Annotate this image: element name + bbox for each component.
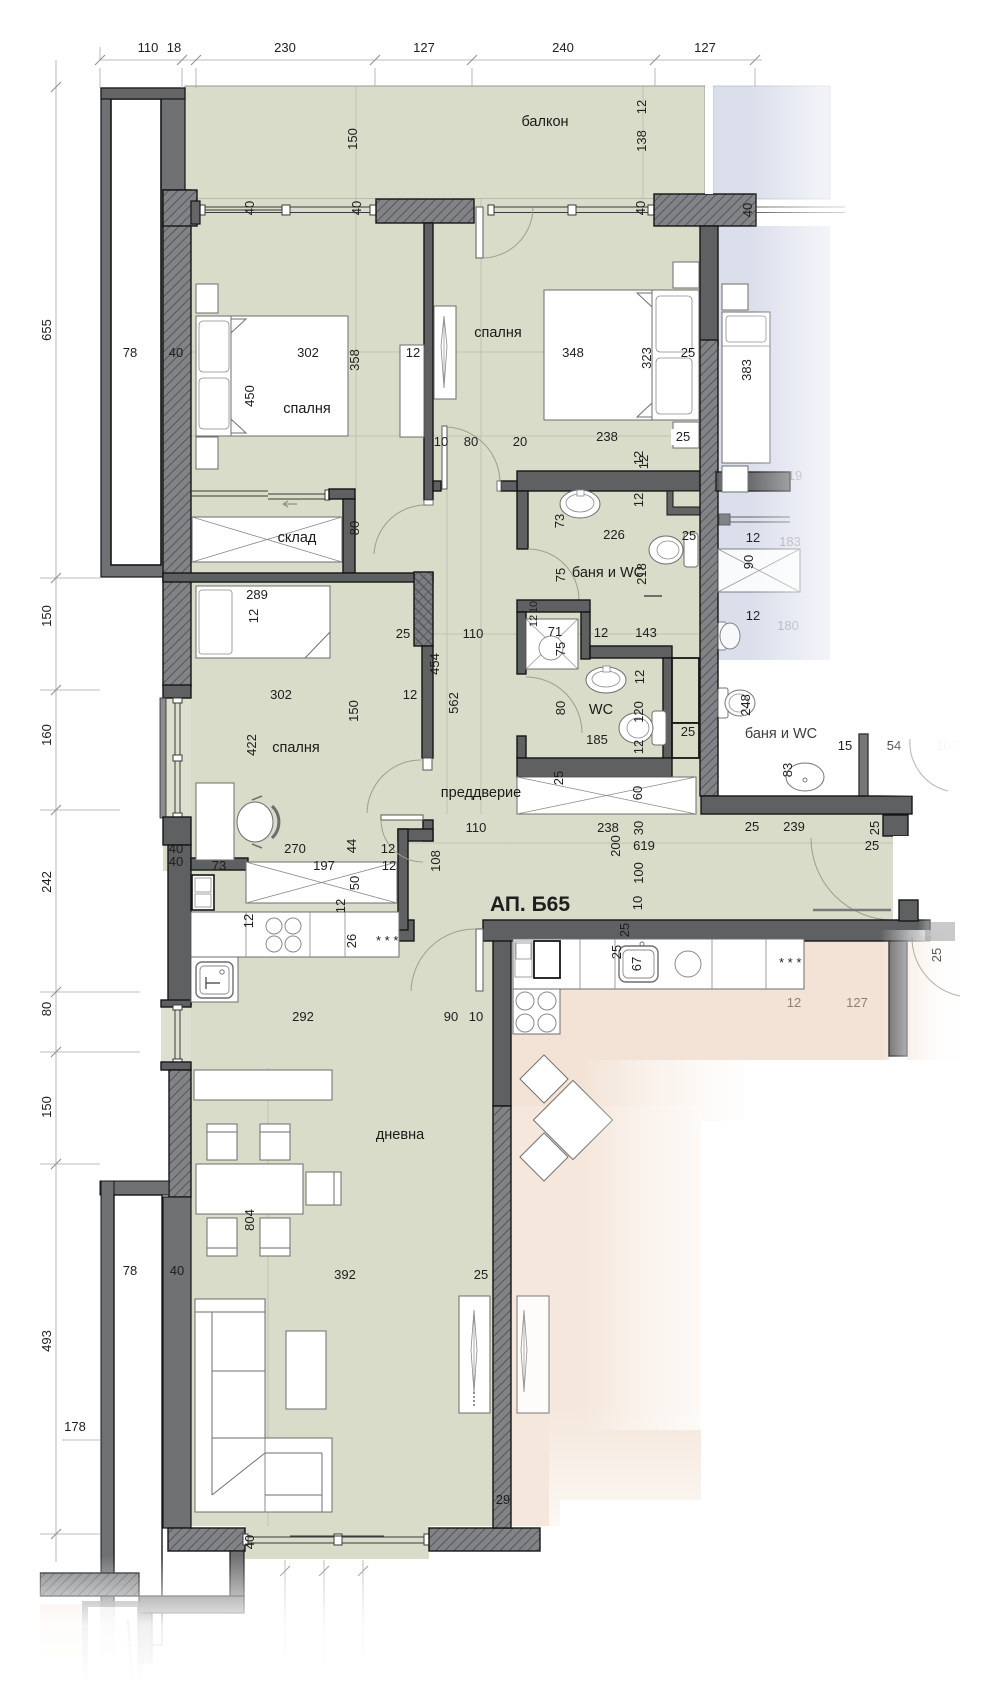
svg-text:150: 150 — [345, 128, 360, 150]
svg-text:197: 197 — [313, 858, 335, 873]
svg-text:143: 143 — [635, 625, 657, 640]
svg-text:127: 127 — [694, 40, 716, 55]
svg-text:25: 25 — [551, 771, 566, 785]
svg-text:12: 12 — [787, 995, 801, 1010]
svg-text:10: 10 — [528, 601, 540, 613]
svg-text:83: 83 — [780, 763, 795, 777]
svg-text:25: 25 — [396, 626, 410, 641]
svg-text:73: 73 — [552, 514, 567, 528]
svg-text:619: 619 — [633, 838, 655, 853]
svg-text:12: 12 — [631, 740, 646, 754]
svg-text:292: 292 — [292, 1009, 314, 1024]
svg-text:270: 270 — [284, 841, 306, 856]
svg-text:44: 44 — [344, 839, 359, 853]
svg-text:12: 12 — [528, 615, 540, 627]
svg-text:40: 40 — [349, 201, 364, 215]
svg-text:40: 40 — [170, 1263, 184, 1278]
svg-text:454: 454 — [427, 653, 442, 675]
svg-text:80: 80 — [39, 1002, 54, 1016]
svg-text:493: 493 — [39, 1330, 54, 1352]
svg-text:20: 20 — [513, 434, 527, 449]
svg-text:12: 12 — [381, 841, 395, 856]
svg-text:75: 75 — [553, 642, 568, 656]
svg-text:25: 25 — [474, 1267, 488, 1282]
svg-text:178: 178 — [64, 1419, 86, 1434]
svg-text:238: 238 — [596, 429, 618, 444]
svg-text:40: 40 — [242, 201, 257, 215]
svg-text:80: 80 — [347, 521, 362, 535]
svg-text:73: 73 — [212, 858, 226, 873]
svg-text:40: 40 — [169, 854, 183, 869]
svg-text:226: 226 — [603, 527, 625, 542]
svg-text:10: 10 — [469, 1009, 483, 1024]
svg-text:240: 240 — [552, 40, 574, 55]
svg-text:127: 127 — [846, 995, 868, 1010]
svg-text:25: 25 — [682, 528, 696, 543]
svg-text:12: 12 — [631, 451, 646, 465]
svg-text:25: 25 — [929, 948, 944, 962]
svg-text:преддверие: преддверие — [441, 785, 521, 801]
svg-text:302: 302 — [297, 345, 319, 360]
svg-text:60: 60 — [630, 786, 645, 800]
svg-text:12: 12 — [631, 493, 646, 507]
svg-text:100: 100 — [631, 862, 646, 884]
svg-text:302: 302 — [270, 687, 292, 702]
svg-text:127: 127 — [413, 40, 435, 55]
svg-text:15: 15 — [838, 738, 852, 753]
svg-text:18: 18 — [167, 40, 181, 55]
svg-text:450: 450 — [242, 385, 257, 407]
svg-text:358: 358 — [347, 349, 362, 371]
svg-text:12: 12 — [594, 625, 608, 640]
svg-text:12: 12 — [241, 914, 256, 928]
svg-text:160: 160 — [39, 724, 54, 746]
svg-text:баня и WC: баня и WC — [572, 565, 644, 581]
svg-text:804: 804 — [242, 1209, 257, 1231]
svg-text:25: 25 — [676, 429, 690, 444]
svg-text:150: 150 — [39, 605, 54, 627]
svg-text:* * *: * * * — [376, 933, 398, 948]
svg-text:80: 80 — [464, 434, 478, 449]
svg-text:25: 25 — [681, 345, 695, 360]
svg-text:12: 12 — [634, 100, 649, 114]
svg-text:30: 30 — [631, 821, 646, 835]
svg-text:25: 25 — [867, 821, 882, 835]
svg-text:WC: WC — [589, 702, 613, 718]
svg-text:25: 25 — [681, 724, 695, 739]
svg-text:185: 185 — [586, 732, 608, 747]
svg-text:80: 80 — [553, 701, 568, 715]
svg-text:дневна: дневна — [376, 1127, 425, 1143]
svg-text:120: 120 — [631, 701, 646, 723]
svg-text:12: 12 — [333, 899, 348, 913]
svg-text:12: 12 — [246, 609, 261, 623]
svg-text:150: 150 — [346, 700, 361, 722]
svg-text:балкон: балкон — [521, 114, 568, 130]
svg-text:12: 12 — [406, 345, 420, 360]
svg-text:25: 25 — [745, 819, 759, 834]
svg-text:спалня: спалня — [474, 325, 522, 341]
svg-text:138: 138 — [634, 130, 649, 152]
svg-text:71: 71 — [548, 624, 562, 639]
svg-text:75: 75 — [553, 568, 568, 582]
svg-text:78: 78 — [123, 345, 137, 360]
svg-text:78: 78 — [123, 1263, 137, 1278]
svg-text:12: 12 — [382, 858, 396, 873]
svg-text:323: 323 — [639, 347, 654, 369]
svg-text:АП. Б65: АП. Б65 — [490, 893, 570, 916]
svg-text:26: 26 — [344, 934, 359, 948]
svg-text:108: 108 — [428, 850, 443, 872]
svg-text:50: 50 — [347, 876, 362, 890]
svg-text:* * *: * * * — [779, 955, 801, 970]
svg-text:баня и WC: баня и WC — [745, 726, 817, 742]
svg-text:25: 25 — [617, 923, 632, 937]
svg-text:10: 10 — [434, 434, 448, 449]
svg-text:10: 10 — [630, 896, 645, 910]
svg-text:67: 67 — [629, 957, 644, 971]
svg-text:562: 562 — [446, 692, 461, 714]
svg-text:392: 392 — [334, 1267, 356, 1282]
svg-text:200: 200 — [608, 835, 623, 857]
svg-text:29: 29 — [496, 1492, 510, 1507]
svg-text:спалня: спалня — [272, 740, 320, 756]
svg-text:422: 422 — [244, 734, 259, 756]
svg-text:655: 655 — [39, 319, 54, 341]
svg-text:150: 150 — [39, 1096, 54, 1118]
svg-text:110: 110 — [466, 820, 487, 835]
svg-text:348: 348 — [562, 345, 584, 360]
svg-text:238: 238 — [597, 820, 619, 835]
svg-text:239: 239 — [783, 819, 805, 834]
svg-text:242: 242 — [39, 871, 54, 893]
svg-text:40: 40 — [242, 1535, 257, 1549]
svg-text:склад: склад — [278, 530, 317, 546]
svg-text:12: 12 — [632, 670, 647, 684]
svg-text:90: 90 — [444, 1009, 458, 1024]
svg-text:110: 110 — [463, 626, 484, 641]
svg-text:25: 25 — [609, 945, 624, 959]
svg-text:289: 289 — [246, 587, 268, 602]
svg-text:12: 12 — [403, 687, 417, 702]
svg-text:25: 25 — [865, 838, 879, 853]
svg-text:40: 40 — [633, 201, 648, 215]
svg-text:40: 40 — [169, 345, 183, 360]
svg-text:110: 110 — [138, 40, 159, 55]
svg-text:спалня: спалня — [283, 401, 331, 417]
svg-text:230: 230 — [274, 40, 296, 55]
